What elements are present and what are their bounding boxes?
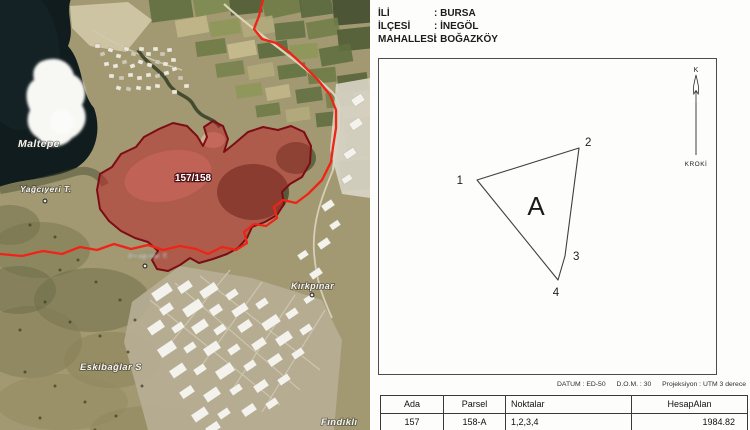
table-row: 157 158-A 1,2,3,4 1984.82 [381, 414, 747, 430]
province-value: : BURSA [434, 7, 476, 20]
col-header-noktalar: Noktalar [506, 396, 632, 414]
parcel-number-label: 157/158 [175, 173, 212, 184]
projection-value: Projeksiyon : UTM 3 derece [662, 381, 746, 388]
satellite-map[interactable]: Maltepe Yağcıyeri T. Dırağıllar T. Kırkp… [0, 0, 370, 430]
cell-noktalar: 1,2,3,4 [506, 414, 632, 430]
map-label-eskibaglar: Eskibağlar S [80, 362, 142, 373]
cell-parsel: 158-A [444, 414, 506, 430]
kroki-sketch-box: K KROKİ 1 2 3 4 A [378, 58, 717, 375]
map-label-yagciyeri: Yağcıyeri T. [20, 184, 72, 194]
province-label: İLİ [378, 7, 434, 20]
map-label-small-hill: Dırağıllar T. [128, 253, 168, 260]
col-header-parsel: Parsel [444, 396, 506, 414]
datum-info-line: DATUM : ED-50 D.O.M. : 30 Projeksiyon : … [380, 381, 746, 388]
cloud-puff [50, 110, 74, 134]
map-label-kirkpinar: Kırkpınar [291, 281, 334, 291]
header-row-neighborhood: MAHALLESİ : BOĞAZKÖY [378, 33, 498, 46]
kroki-title: KROKİ [685, 159, 708, 168]
cell-hesapalan: 1984.82 [632, 414, 747, 430]
parcel-table: Ada Parsel Noktalar HesapAlan 157 158-A … [380, 395, 748, 430]
neighborhood-value: : BOĞAZKÖY [434, 33, 498, 46]
north-letter: K [694, 67, 699, 74]
col-header-ada: Ada [381, 396, 444, 414]
sketch-point-1: 1 [457, 175, 463, 187]
sketch-area-label: A [527, 191, 545, 221]
neighborhood-label: MAHALLESİ [378, 33, 434, 46]
dom-value: D.O.M. : 30 [617, 381, 652, 388]
header-row-province: İLİ : BURSA [378, 7, 498, 20]
district-value: : İNEGÖL [434, 20, 478, 33]
map-label-findikli: Fındıklı [321, 417, 357, 428]
col-header-hesapalan: HesapAlan [632, 396, 747, 414]
location-header: İLİ : BURSA İLÇESİ : İNEGÖL MAHALLESİ : … [378, 7, 498, 46]
kroki-document: İLİ : BURSA İLÇESİ : İNEGÖL MAHALLESİ : … [370, 0, 750, 430]
map-label-maltepe: Maltepe [18, 138, 60, 150]
district-label: İLÇESİ [378, 20, 434, 33]
sketch-point-3: 3 [573, 251, 579, 263]
sketch-point-2: 2 [585, 137, 591, 149]
sketch-point-4: 4 [553, 287, 560, 299]
parcel-query-page: Maltepe Yağcıyeri T. Dırağıllar T. Kırkp… [0, 0, 750, 430]
cell-ada: 157 [381, 414, 444, 430]
table-header-row: Ada Parsel Noktalar HesapAlan [381, 396, 747, 414]
header-row-district: İLÇESİ : İNEGÖL [378, 20, 498, 33]
datum-value: DATUM : ED-50 [557, 381, 606, 388]
north-arrow-icon: K KROKİ [685, 67, 708, 168]
